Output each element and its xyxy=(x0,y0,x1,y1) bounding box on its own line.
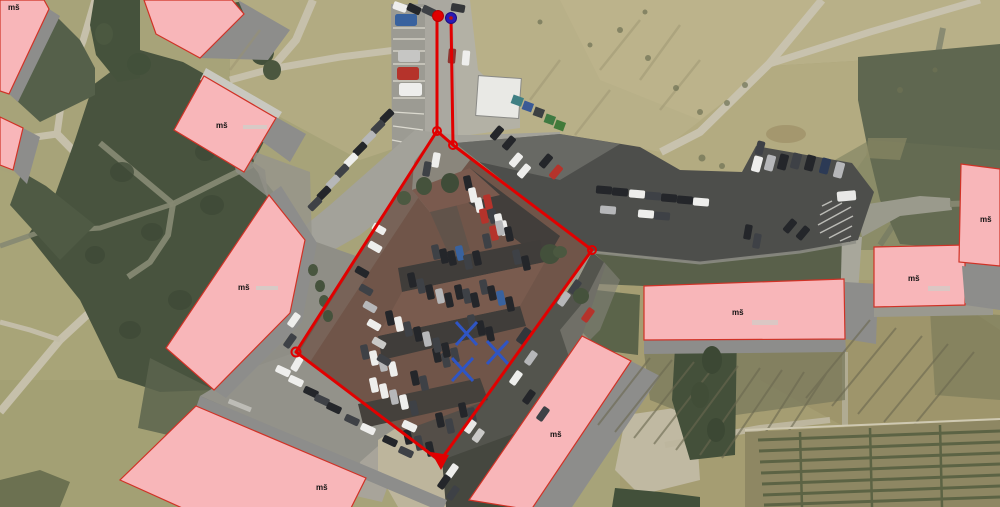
svg-text:mš: mš xyxy=(8,3,20,12)
svg-text:mš: mš xyxy=(550,430,562,439)
svg-text:mš: mš xyxy=(238,283,250,292)
svg-text:mš: mš xyxy=(216,121,228,130)
svg-text:mš: mš xyxy=(908,274,920,283)
svg-text:mš: mš xyxy=(732,308,744,317)
svg-text:mš: mš xyxy=(316,483,328,492)
svg-text:mš: mš xyxy=(980,215,992,224)
